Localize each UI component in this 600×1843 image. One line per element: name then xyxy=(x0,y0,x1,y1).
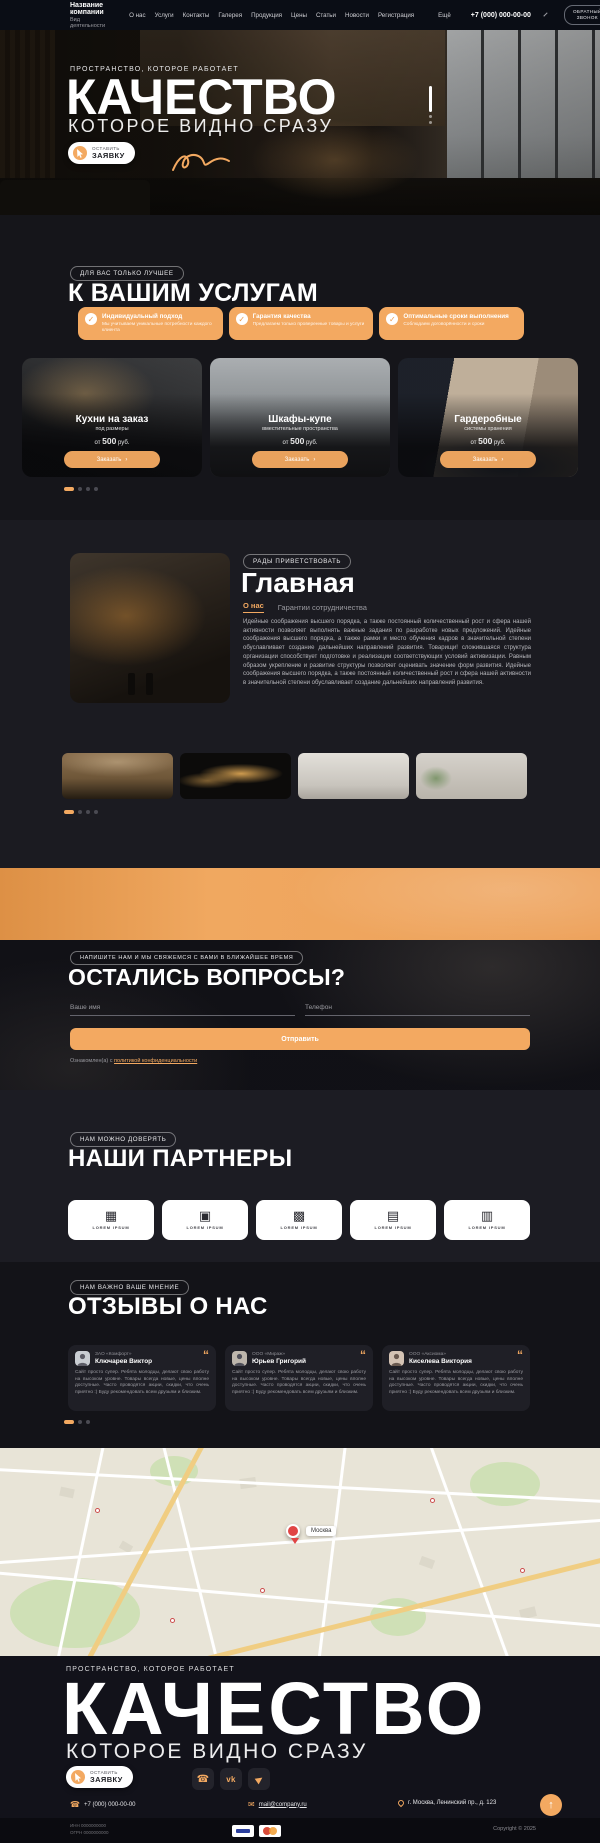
review-card: “ ООО «Аксиома» Киселева Виктория Сайт п… xyxy=(382,1345,530,1411)
partner-card[interactable]: ▩ LOREM IPSUM xyxy=(256,1200,342,1240)
mastercard-badge xyxy=(259,1825,281,1837)
chevron-down-icon[interactable] xyxy=(543,12,547,16)
cursor-icon xyxy=(71,1770,85,1784)
consent-text: Ознакомлен(а) с политикой конфиденциальн… xyxy=(70,1058,197,1064)
feature-deadlines: ✓ Оптимальные сроки выполнения Соблюдаем… xyxy=(379,307,524,340)
name-input[interactable] xyxy=(70,1000,295,1016)
cards-pagination[interactable] xyxy=(64,487,98,491)
copyright: Copyright © 2025 xyxy=(493,1826,536,1832)
callback-button[interactable]: ОБРАТНЫЙ ЗВОНОК xyxy=(564,5,600,25)
arrow-right-icon: › xyxy=(501,457,503,463)
contact-email[interactable]: ✉ mail@company.ru xyxy=(248,1800,307,1809)
check-icon: ✓ xyxy=(386,313,398,325)
map-pin-icon[interactable] xyxy=(286,1524,300,1538)
logo[interactable]: Название компании Вид деятельности xyxy=(70,2,105,29)
stats-band: 100% ГАРАНТИЯ КАЧЕСТВА на все товары и у… xyxy=(0,868,600,940)
nav-products[interactable]: Продукция xyxy=(251,12,282,19)
hero-title: КАЧЕСТВО xyxy=(66,72,336,122)
hero-cta-button[interactable]: ОСТАВИТЬ ЗАЯВКУ xyxy=(68,142,135,164)
hero-slider-indicator[interactable] xyxy=(429,86,432,124)
quote-icon: “ xyxy=(517,1348,523,1362)
hero-subtitle: КОТОРОЕ ВИДНО СРАЗУ xyxy=(68,116,333,137)
arrow-right-icon: › xyxy=(125,457,127,463)
hero-section: ПРОСТРАНСТВО, КОТОРОЕ РАБОТАЕТ КАЧЕСТВО … xyxy=(0,30,600,215)
order-button[interactable]: Заказать› xyxy=(440,451,536,468)
gallery-pagination[interactable] xyxy=(64,810,98,814)
feature-quality: ✓ Гарантия качества Предлагаем только пр… xyxy=(229,307,374,340)
gallery-row xyxy=(62,753,527,799)
footer-cta-button[interactable]: ОСТАВИТЬ ЗАЯВКУ xyxy=(66,1766,133,1788)
features-row: ✓ Индивидуальный подход Мы учитываем уни… xyxy=(78,307,524,340)
cursor-icon xyxy=(73,146,87,160)
nav-prices[interactable]: Цены xyxy=(291,12,307,19)
contact-address: г. Москва, Ленинский пр., д. 123 xyxy=(398,1800,496,1806)
partner-logo-icon: ▩ xyxy=(293,1210,305,1223)
about-tabs: О нас Гарантии сотрудничества xyxy=(243,601,367,613)
company-type: Вид деятельности xyxy=(70,17,105,29)
header-phone[interactable]: +7 (000) 000-00-00 xyxy=(471,12,531,19)
nav-contacts[interactable]: Контакты xyxy=(183,12,210,19)
nav-about[interactable]: О нас xyxy=(129,12,145,19)
form-badge: НАПИШИТЕ НАМ И МЫ СВЯЖЕМСЯ С ВАМИ В БЛИЖ… xyxy=(70,951,303,965)
partner-logo-icon: ▤ xyxy=(387,1210,399,1223)
avatar xyxy=(232,1351,247,1366)
partner-logo-icon: ▦ xyxy=(105,1210,117,1223)
tab-about-us[interactable]: О нас xyxy=(243,601,264,613)
partner-card[interactable]: ▦ LOREM IPSUM xyxy=(68,1200,154,1240)
phone-input[interactable] xyxy=(305,1000,530,1016)
tab-guarantees[interactable]: Гарантии сотрудничества xyxy=(278,603,367,612)
phone-icon: ☎ xyxy=(70,1800,80,1809)
footer-title: КАЧЕСТВО xyxy=(62,1672,486,1746)
nav-registration[interactable]: Регистрация xyxy=(378,12,414,19)
check-icon: ✓ xyxy=(236,313,248,325)
main-nav: О нас Услуги Контакты Галерея Продукция … xyxy=(129,12,414,19)
partner-logo-icon: ▣ xyxy=(199,1210,211,1223)
partner-card[interactable]: ▥ LOREM IPSUM xyxy=(444,1200,530,1240)
gallery-thumb[interactable] xyxy=(180,753,291,799)
decorative-scribble xyxy=(170,148,232,176)
card-dressing-rooms[interactable]: Гардеробные системы хранения от 500 руб.… xyxy=(398,358,578,477)
about-paragraph: Идейные соображения высшего порядка, а т… xyxy=(243,618,531,688)
partner-logos: ▦ LOREM IPSUM ▣ LOREM IPSUM ▩ LOREM IPSU… xyxy=(68,1200,530,1240)
review-card: “ ЗАО «Комфорт» Ключарев Виктор Сайт про… xyxy=(68,1345,216,1411)
scroll-to-top-button[interactable]: ↑ xyxy=(540,1794,562,1816)
partners-title: НАШИ ПАРТНЕРЫ xyxy=(68,1145,292,1173)
about-photo xyxy=(70,553,230,703)
about-title: Главная xyxy=(241,567,355,599)
map[interactable]: Москва xyxy=(0,1448,600,1656)
quote-icon: “ xyxy=(203,1348,209,1362)
nav-gallery[interactable]: Галерея xyxy=(218,12,242,19)
feature-individual: ✓ Индивидуальный подход Мы учитываем уни… xyxy=(78,307,223,340)
nav-services[interactable]: Услуги xyxy=(155,12,174,19)
header: Название компании Вид деятельности О нас… xyxy=(0,0,600,30)
nav-news[interactable]: Новости xyxy=(345,12,369,19)
privacy-policy-link[interactable]: политикой конфиденциальности xyxy=(114,1058,197,1064)
partner-logo-icon: ▥ xyxy=(481,1210,493,1223)
form-title: ОСТАЛИСЬ ВОПРОСЫ? xyxy=(68,964,345,991)
gallery-thumb[interactable] xyxy=(298,753,409,799)
footer-subtitle: КОТОРОЕ ВИДНО СРАЗУ xyxy=(66,1740,368,1764)
avatar xyxy=(389,1351,404,1366)
visa-badge xyxy=(232,1825,254,1837)
map-city-label: Москва xyxy=(306,1526,336,1536)
telegram-icon[interactable]: ▶ xyxy=(248,1768,270,1790)
nav-articles[interactable]: Статьи xyxy=(316,12,336,19)
review-card: “ ООО «Мираж» Юрьев Григорий Сайт просто… xyxy=(225,1345,373,1411)
landing-page: Название компании Вид деятельности О нас… xyxy=(0,0,600,1843)
nav-more[interactable]: Ещё xyxy=(438,12,451,19)
quote-icon: “ xyxy=(360,1348,366,1362)
company-name: Название компании xyxy=(70,2,105,16)
gallery-thumb[interactable] xyxy=(62,753,173,799)
order-button[interactable]: Заказать› xyxy=(64,451,160,468)
email-icon: ✉ xyxy=(248,1800,255,1809)
map-pin-icon xyxy=(397,1799,405,1807)
legal-info: ИНН 0000000000 ОГРН 0000000000 xyxy=(70,1823,108,1836)
reviews-pagination[interactable] xyxy=(64,1420,90,1424)
contact-phone[interactable]: ☎ +7 (000) 000-00-00 xyxy=(70,1800,136,1809)
gallery-thumb[interactable] xyxy=(416,753,527,799)
card-kitchens[interactable]: Кухни на заказ под размеры от 500 руб. З… xyxy=(22,358,202,477)
avatar xyxy=(75,1351,90,1366)
reviews-title: ОТЗЫВЫ О НАС xyxy=(68,1293,268,1321)
social-links: ☎ vk ▶ xyxy=(192,1768,270,1790)
product-cards: Кухни на заказ под размеры от 500 руб. З… xyxy=(22,358,578,477)
phone-social-icon[interactable]: ☎ xyxy=(192,1768,214,1790)
submit-button[interactable]: Отправить xyxy=(70,1028,530,1050)
payment-badges xyxy=(232,1825,281,1837)
vk-icon[interactable]: vk xyxy=(220,1768,242,1790)
card-wardrobes[interactable]: Шкафы-купе вместительные пространства от… xyxy=(210,358,390,477)
order-button[interactable]: Заказать› xyxy=(252,451,348,468)
partner-card[interactable]: ▤ LOREM IPSUM xyxy=(350,1200,436,1240)
review-cards: “ ЗАО «Комфорт» Ключарев Виктор Сайт про… xyxy=(68,1345,530,1411)
arrow-right-icon: › xyxy=(313,457,315,463)
services-title: К ВАШИМ УСЛУГАМ xyxy=(68,279,318,308)
partner-card[interactable]: ▣ LOREM IPSUM xyxy=(162,1200,248,1240)
check-icon: ✓ xyxy=(85,313,97,325)
